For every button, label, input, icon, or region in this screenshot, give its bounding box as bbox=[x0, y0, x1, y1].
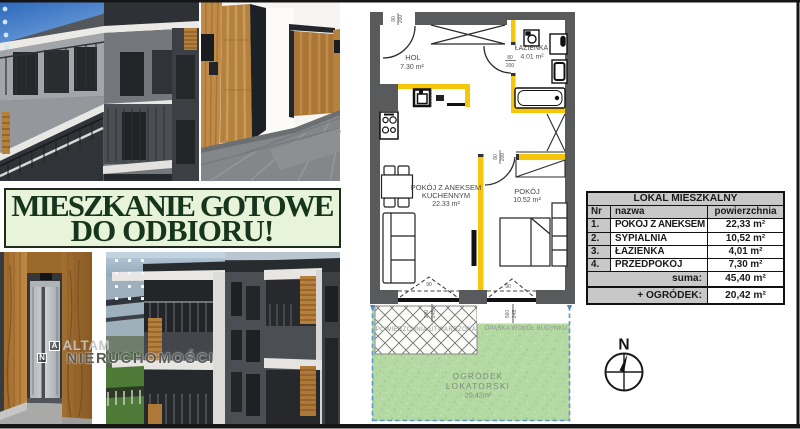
svg-text:245: 245 bbox=[512, 310, 518, 319]
svg-text:ŁAZIENKA: ŁAZIENKA bbox=[515, 45, 549, 52]
svg-text:LOKATORSKI: LOKATORSKI bbox=[446, 381, 510, 391]
svg-text:90: 90 bbox=[391, 16, 397, 22]
svg-text:80: 80 bbox=[493, 154, 499, 160]
svg-text:22.33 m²: 22.33 m² bbox=[432, 201, 460, 208]
svg-text:OPASKA WOKÓŁ BUDYNKU: OPASKA WOKÓŁ BUDYNKU bbox=[485, 325, 568, 332]
svg-text:N: N bbox=[618, 337, 629, 354]
svg-text:20,42m²: 20,42m² bbox=[465, 391, 492, 400]
svg-text:4.01 m²: 4.01 m² bbox=[520, 54, 544, 61]
svg-text:245: 245 bbox=[431, 310, 437, 319]
svg-text:200: 200 bbox=[500, 153, 506, 162]
svg-text:OGRÓDEK: OGRÓDEK bbox=[453, 371, 504, 381]
svg-text:90: 90 bbox=[505, 284, 511, 290]
svg-text:KUCHENNYM: KUCHENNYM bbox=[422, 191, 470, 200]
svg-text:200: 200 bbox=[398, 15, 404, 24]
svg-text:POKÓJ: POKÓJ bbox=[514, 187, 540, 196]
svg-text:200: 200 bbox=[424, 310, 430, 319]
svg-text:90: 90 bbox=[426, 282, 432, 288]
svg-text:10.52 m²: 10.52 m² bbox=[513, 197, 541, 204]
svg-text:7.30 m²: 7.30 m² bbox=[400, 64, 424, 71]
svg-text:POWIERZCHNIA UTWARDZONA: POWIERZCHNIA UTWARDZONA bbox=[376, 326, 477, 333]
svg-text:200: 200 bbox=[506, 63, 515, 69]
svg-text:560: 560 bbox=[505, 310, 511, 319]
svg-text:HOL: HOL bbox=[405, 53, 420, 62]
